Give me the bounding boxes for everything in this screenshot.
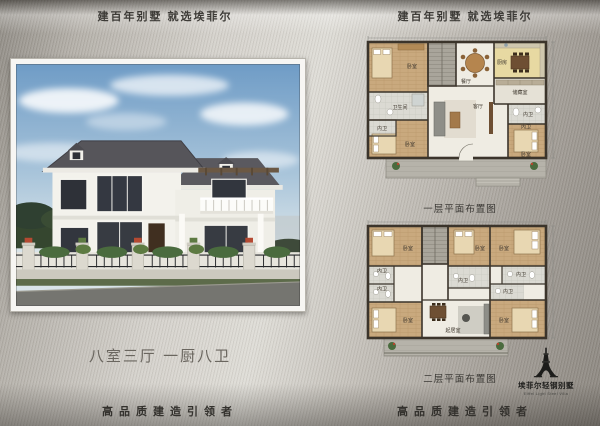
room-label: 内卫 xyxy=(521,124,531,131)
room-label: 餐厅 xyxy=(461,78,471,85)
room-label: 内卫 xyxy=(377,286,387,293)
balcony-railing xyxy=(200,197,273,213)
floor1-plan-block: 卧室 卫生间 内卫 卧室 餐厅 厨房 储藏室 内卫 客厅 . 内卫 卧室 一层平… xyxy=(356,36,564,215)
footer-right: 高品质建造引领者 xyxy=(330,403,600,417)
room-label: 卫生间 xyxy=(392,104,407,111)
room-label: 内卫 xyxy=(503,288,513,295)
spec-tagline: 八室三厅 一厨八卫 xyxy=(20,345,300,366)
floor1-caption: 一层平面布置图 xyxy=(356,201,564,215)
room-label: 起居室 xyxy=(445,327,460,334)
eiffel-tower-icon xyxy=(529,347,563,379)
villa-photo-frame xyxy=(10,58,306,312)
room-label: 客厅 xyxy=(473,103,483,110)
window xyxy=(212,179,247,200)
room-label: 卧室 xyxy=(499,245,509,252)
floor1-plan: 卧室 卫生间 内卫 卧室 餐厅 厨房 储藏室 内卫 客厅 . 内卫 卧室 xyxy=(356,36,564,198)
room-label: 卧室 xyxy=(407,63,417,70)
room-label: 卧室 xyxy=(403,317,413,324)
slogan-left: 建百年别墅 就选埃菲尔 xyxy=(0,8,330,22)
window xyxy=(60,179,87,210)
room-label: 内卫 xyxy=(516,271,526,278)
room-label: 卧室 xyxy=(521,151,531,158)
room-label: 厨房 xyxy=(497,59,507,66)
villa-photo xyxy=(16,64,300,306)
entry-opening xyxy=(459,156,473,161)
brochure-sheet: 建百年别墅 就选埃菲尔 建百年别墅 就选埃菲尔 xyxy=(0,0,600,426)
room-label: 卧室 xyxy=(403,245,413,252)
room-label: 卧室 xyxy=(475,245,485,252)
window xyxy=(97,175,143,211)
room-label: 卧室 xyxy=(405,141,415,148)
floor2-plan: 卧室 内卫 内卫 卧室 卧室 内卫 卧室 内卫 内卫 卧室 起居室 xyxy=(356,220,564,368)
brand-logo: 埃菲尔轻钢别墅 Eiffel Light Steel Villa xyxy=(508,347,584,396)
room-label: 内卫 xyxy=(377,125,387,132)
logo-subtitle: Eiffel Light Steel Villa xyxy=(512,391,580,396)
room-label: 卧室 xyxy=(499,317,509,324)
room-label: 储藏室 xyxy=(512,89,527,96)
porch xyxy=(386,158,546,178)
room-label: 内卫 xyxy=(523,111,533,118)
room-label: 内卫 xyxy=(377,268,387,275)
logo-name: 埃菲尔轻钢别墅 xyxy=(508,380,584,391)
room-label: 内卫 xyxy=(458,277,468,284)
footer-left: 高品质建造引领者 xyxy=(0,403,340,417)
slogan-right: 建百年别墅 就选埃菲尔 xyxy=(330,8,600,22)
